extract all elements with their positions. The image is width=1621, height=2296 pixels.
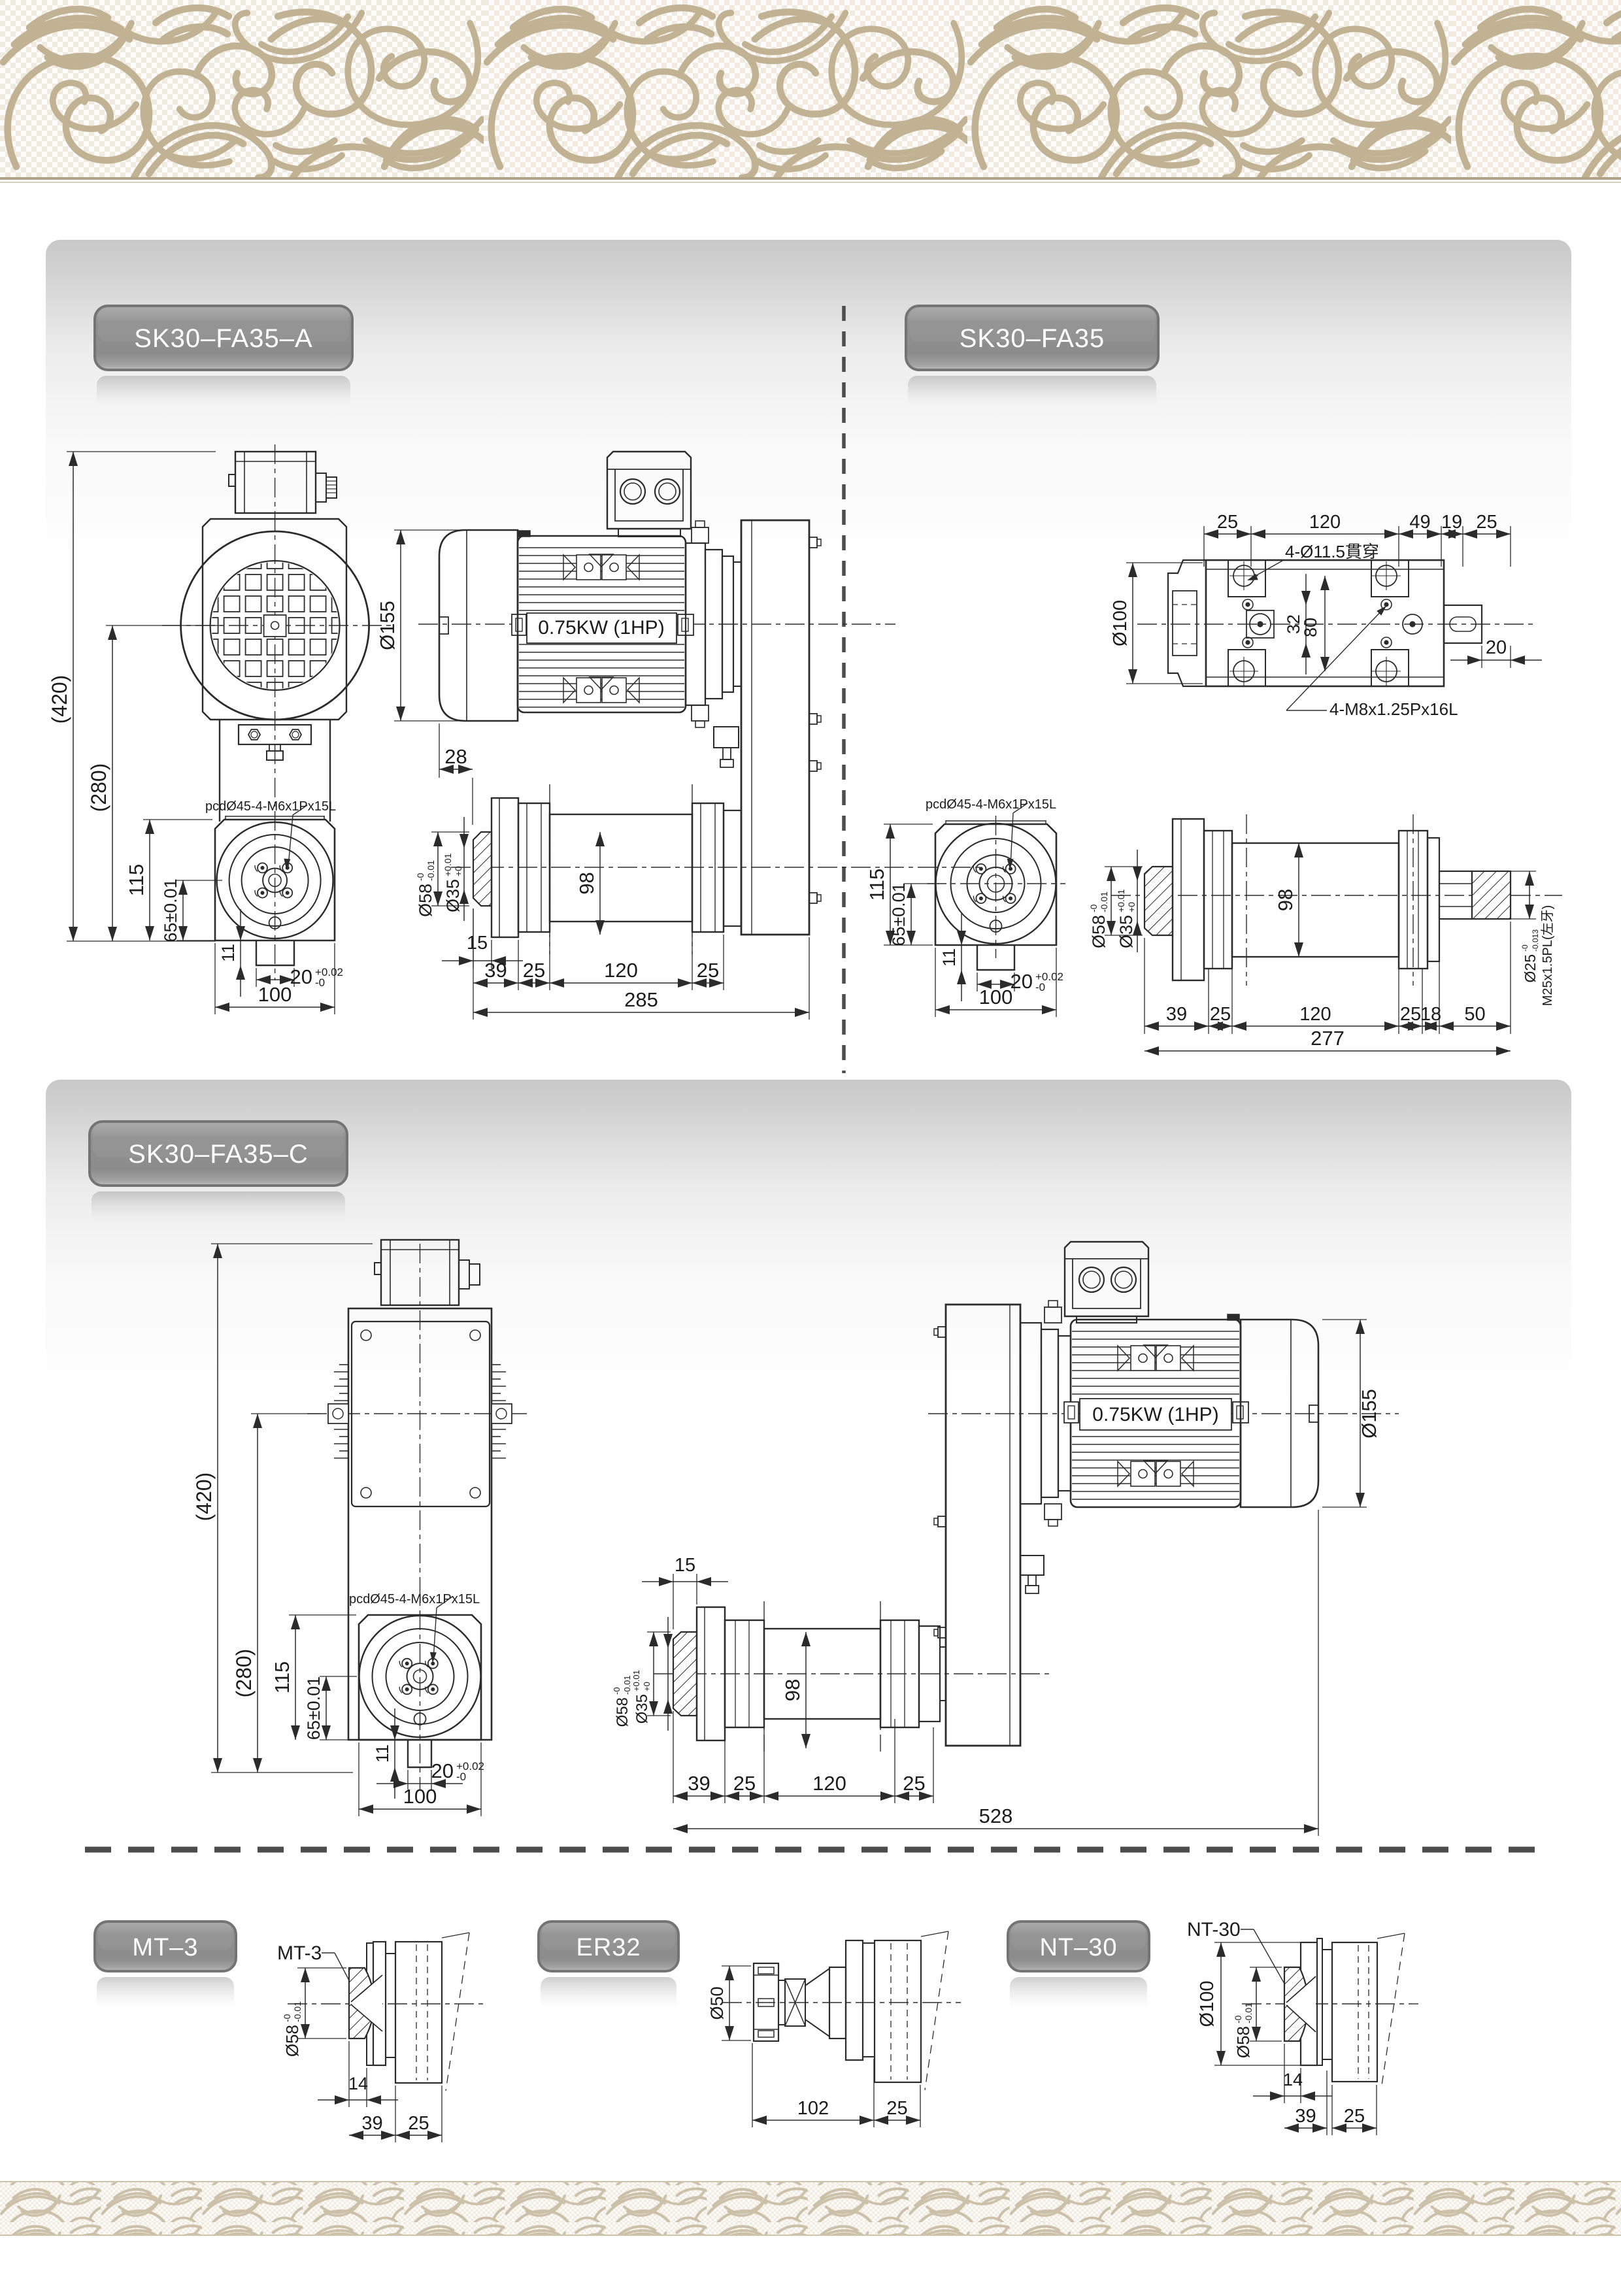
svg-text:14: 14 [348, 2074, 368, 2093]
svg-text:Ø58: Ø58 [282, 2025, 302, 2057]
svg-text:115: 115 [271, 1661, 293, 1693]
svg-text:Ø155: Ø155 [1358, 1389, 1380, 1439]
svg-text:11: 11 [218, 944, 238, 962]
svg-text:277: 277 [1311, 1027, 1345, 1050]
svg-text:pcdØ45-4-M6x1Px15L: pcdØ45-4-M6x1Px15L [926, 797, 1056, 812]
svg-text:15: 15 [467, 933, 488, 954]
svg-text:pcdØ45-4-M6x1Px15L: pcdØ45-4-M6x1Px15L [205, 799, 336, 814]
svg-text:65±0.01: 65±0.01 [304, 1676, 324, 1740]
svg-text:Ø58: Ø58 [614, 1697, 631, 1727]
svg-text:Ø155: Ø155 [376, 601, 399, 650]
svg-text:Ø100: Ø100 [1197, 1981, 1218, 2027]
svg-text:100: 100 [258, 983, 292, 1006]
svg-text:+0.01: +0.01 [1116, 889, 1126, 912]
svg-text:98: 98 [575, 872, 598, 894]
svg-text:-0: -0 [415, 873, 426, 881]
svg-text:18: 18 [1420, 1004, 1441, 1025]
svg-text:25: 25 [886, 2098, 907, 2119]
svg-text:102: 102 [797, 2098, 829, 2119]
svg-text:20: 20 [290, 965, 312, 988]
svg-text:39: 39 [484, 959, 507, 982]
svg-text:M25x1.5PL(左牙): M25x1.5PL(左牙) [1540, 905, 1555, 1007]
svg-text:25: 25 [1476, 512, 1497, 533]
svg-text:(420): (420) [192, 1472, 216, 1522]
svg-text:-0: -0 [612, 1687, 622, 1695]
svg-text:-0: -0 [1035, 981, 1045, 993]
svg-text:pcdØ45-4-M6x1Px15L: pcdØ45-4-M6x1Px15L [349, 1592, 480, 1606]
svg-text:NT–30: NT–30 [1039, 1934, 1117, 1961]
svg-text:25: 25 [1217, 512, 1238, 533]
svg-text:-0: -0 [1233, 2015, 1243, 2023]
svg-text:65±0.01: 65±0.01 [889, 882, 909, 946]
svg-text:25: 25 [903, 1772, 925, 1795]
svg-text:25: 25 [408, 2113, 429, 2134]
svg-text:50: 50 [1464, 1004, 1485, 1025]
svg-text:285: 285 [624, 988, 658, 1011]
svg-text:Ø35: Ø35 [443, 879, 463, 912]
svg-text:15: 15 [675, 1555, 695, 1576]
svg-text:28: 28 [444, 745, 467, 768]
svg-text:-0.013: -0.013 [1531, 929, 1540, 952]
svg-text:115: 115 [865, 869, 888, 901]
svg-text:+0: +0 [1126, 902, 1137, 912]
svg-text:4-M8x1.25Px16L: 4-M8x1.25Px16L [1329, 699, 1458, 719]
svg-text:SK30–FA35–C: SK30–FA35–C [128, 1140, 309, 1169]
svg-text:-0.01: -0.01 [426, 860, 436, 881]
svg-text:-0.01: -0.01 [1099, 891, 1109, 912]
svg-text:25: 25 [1400, 1004, 1421, 1025]
svg-text:SK30–FA35: SK30–FA35 [960, 324, 1105, 353]
svg-text:(280): (280) [87, 763, 110, 812]
svg-text:(420): (420) [48, 675, 71, 724]
svg-text:100: 100 [403, 1785, 437, 1808]
svg-text:39: 39 [688, 1772, 710, 1795]
svg-text:-0: -0 [1088, 904, 1099, 912]
svg-text:49: 49 [1409, 512, 1430, 533]
svg-text:4-Ø11.5貫穿: 4-Ø11.5貫穿 [1285, 542, 1379, 561]
svg-text:-0: -0 [1520, 944, 1529, 952]
svg-text:120: 120 [812, 1772, 846, 1795]
svg-text:120: 120 [604, 959, 638, 982]
svg-text:+0.01: +0.01 [631, 1670, 641, 1691]
svg-text:Ø35: Ø35 [1116, 915, 1136, 948]
svg-text:Ø50: Ø50 [707, 1986, 727, 2020]
svg-text:25: 25 [697, 959, 719, 982]
svg-text:98: 98 [781, 1679, 804, 1701]
svg-text:NT-30: NT-30 [1187, 1919, 1241, 1940]
svg-text:39: 39 [361, 2113, 382, 2134]
svg-text:0.75KW (1HP): 0.75KW (1HP) [538, 617, 664, 639]
svg-text:ER32: ER32 [576, 1934, 641, 1961]
svg-text:65±0.01: 65±0.01 [161, 878, 180, 942]
svg-text:0.75KW (1HP): 0.75KW (1HP) [1092, 1404, 1218, 1425]
svg-text:11: 11 [939, 948, 959, 967]
svg-text:20: 20 [1011, 970, 1033, 993]
svg-text:98: 98 [1274, 889, 1297, 911]
svg-text:25: 25 [523, 959, 545, 982]
svg-text:14: 14 [1283, 2070, 1303, 2089]
svg-text:Ø35: Ø35 [633, 1694, 651, 1723]
svg-text:-0.01: -0.01 [292, 2001, 303, 2022]
svg-text:Ø100: Ø100 [1110, 600, 1131, 646]
svg-text:Ø25: Ø25 [1522, 954, 1539, 982]
svg-text:SK30–FA35–A: SK30–FA35–A [134, 324, 312, 353]
svg-text:Ø58: Ø58 [1233, 2026, 1253, 2058]
svg-text:MT–3: MT–3 [132, 1934, 198, 1961]
svg-text:528: 528 [979, 1805, 1013, 1827]
svg-text:-0: -0 [315, 976, 325, 989]
svg-text:115: 115 [125, 864, 148, 896]
svg-text:20: 20 [431, 1759, 454, 1782]
svg-text:-0: -0 [456, 1771, 466, 1783]
svg-text:120: 120 [1309, 512, 1341, 533]
svg-text:Ø58: Ø58 [1089, 915, 1109, 948]
svg-text:100: 100 [979, 986, 1013, 1008]
svg-text:-0.01: -0.01 [1243, 2003, 1254, 2023]
svg-text:25: 25 [1344, 2106, 1365, 2127]
svg-text:+0: +0 [453, 866, 463, 876]
svg-text:25: 25 [1210, 1004, 1231, 1025]
svg-text:39: 39 [1166, 1004, 1187, 1025]
svg-text:-0.01: -0.01 [622, 1675, 632, 1695]
svg-text:20: 20 [1486, 637, 1507, 658]
svg-text:25: 25 [733, 1772, 756, 1795]
svg-text:80: 80 [1301, 618, 1320, 637]
svg-text:MT-3: MT-3 [277, 1942, 322, 1964]
svg-text:(280): (280) [232, 1649, 256, 1698]
svg-text:11: 11 [373, 1744, 392, 1763]
svg-text:19: 19 [1441, 512, 1462, 533]
svg-text:+0.01: +0.01 [443, 853, 453, 876]
svg-text:120: 120 [1299, 1004, 1331, 1025]
svg-text:-0: -0 [282, 2014, 292, 2022]
svg-text:39: 39 [1295, 2106, 1316, 2127]
svg-text:Ø58: Ø58 [416, 884, 435, 917]
svg-text:+0: +0 [642, 1682, 652, 1691]
